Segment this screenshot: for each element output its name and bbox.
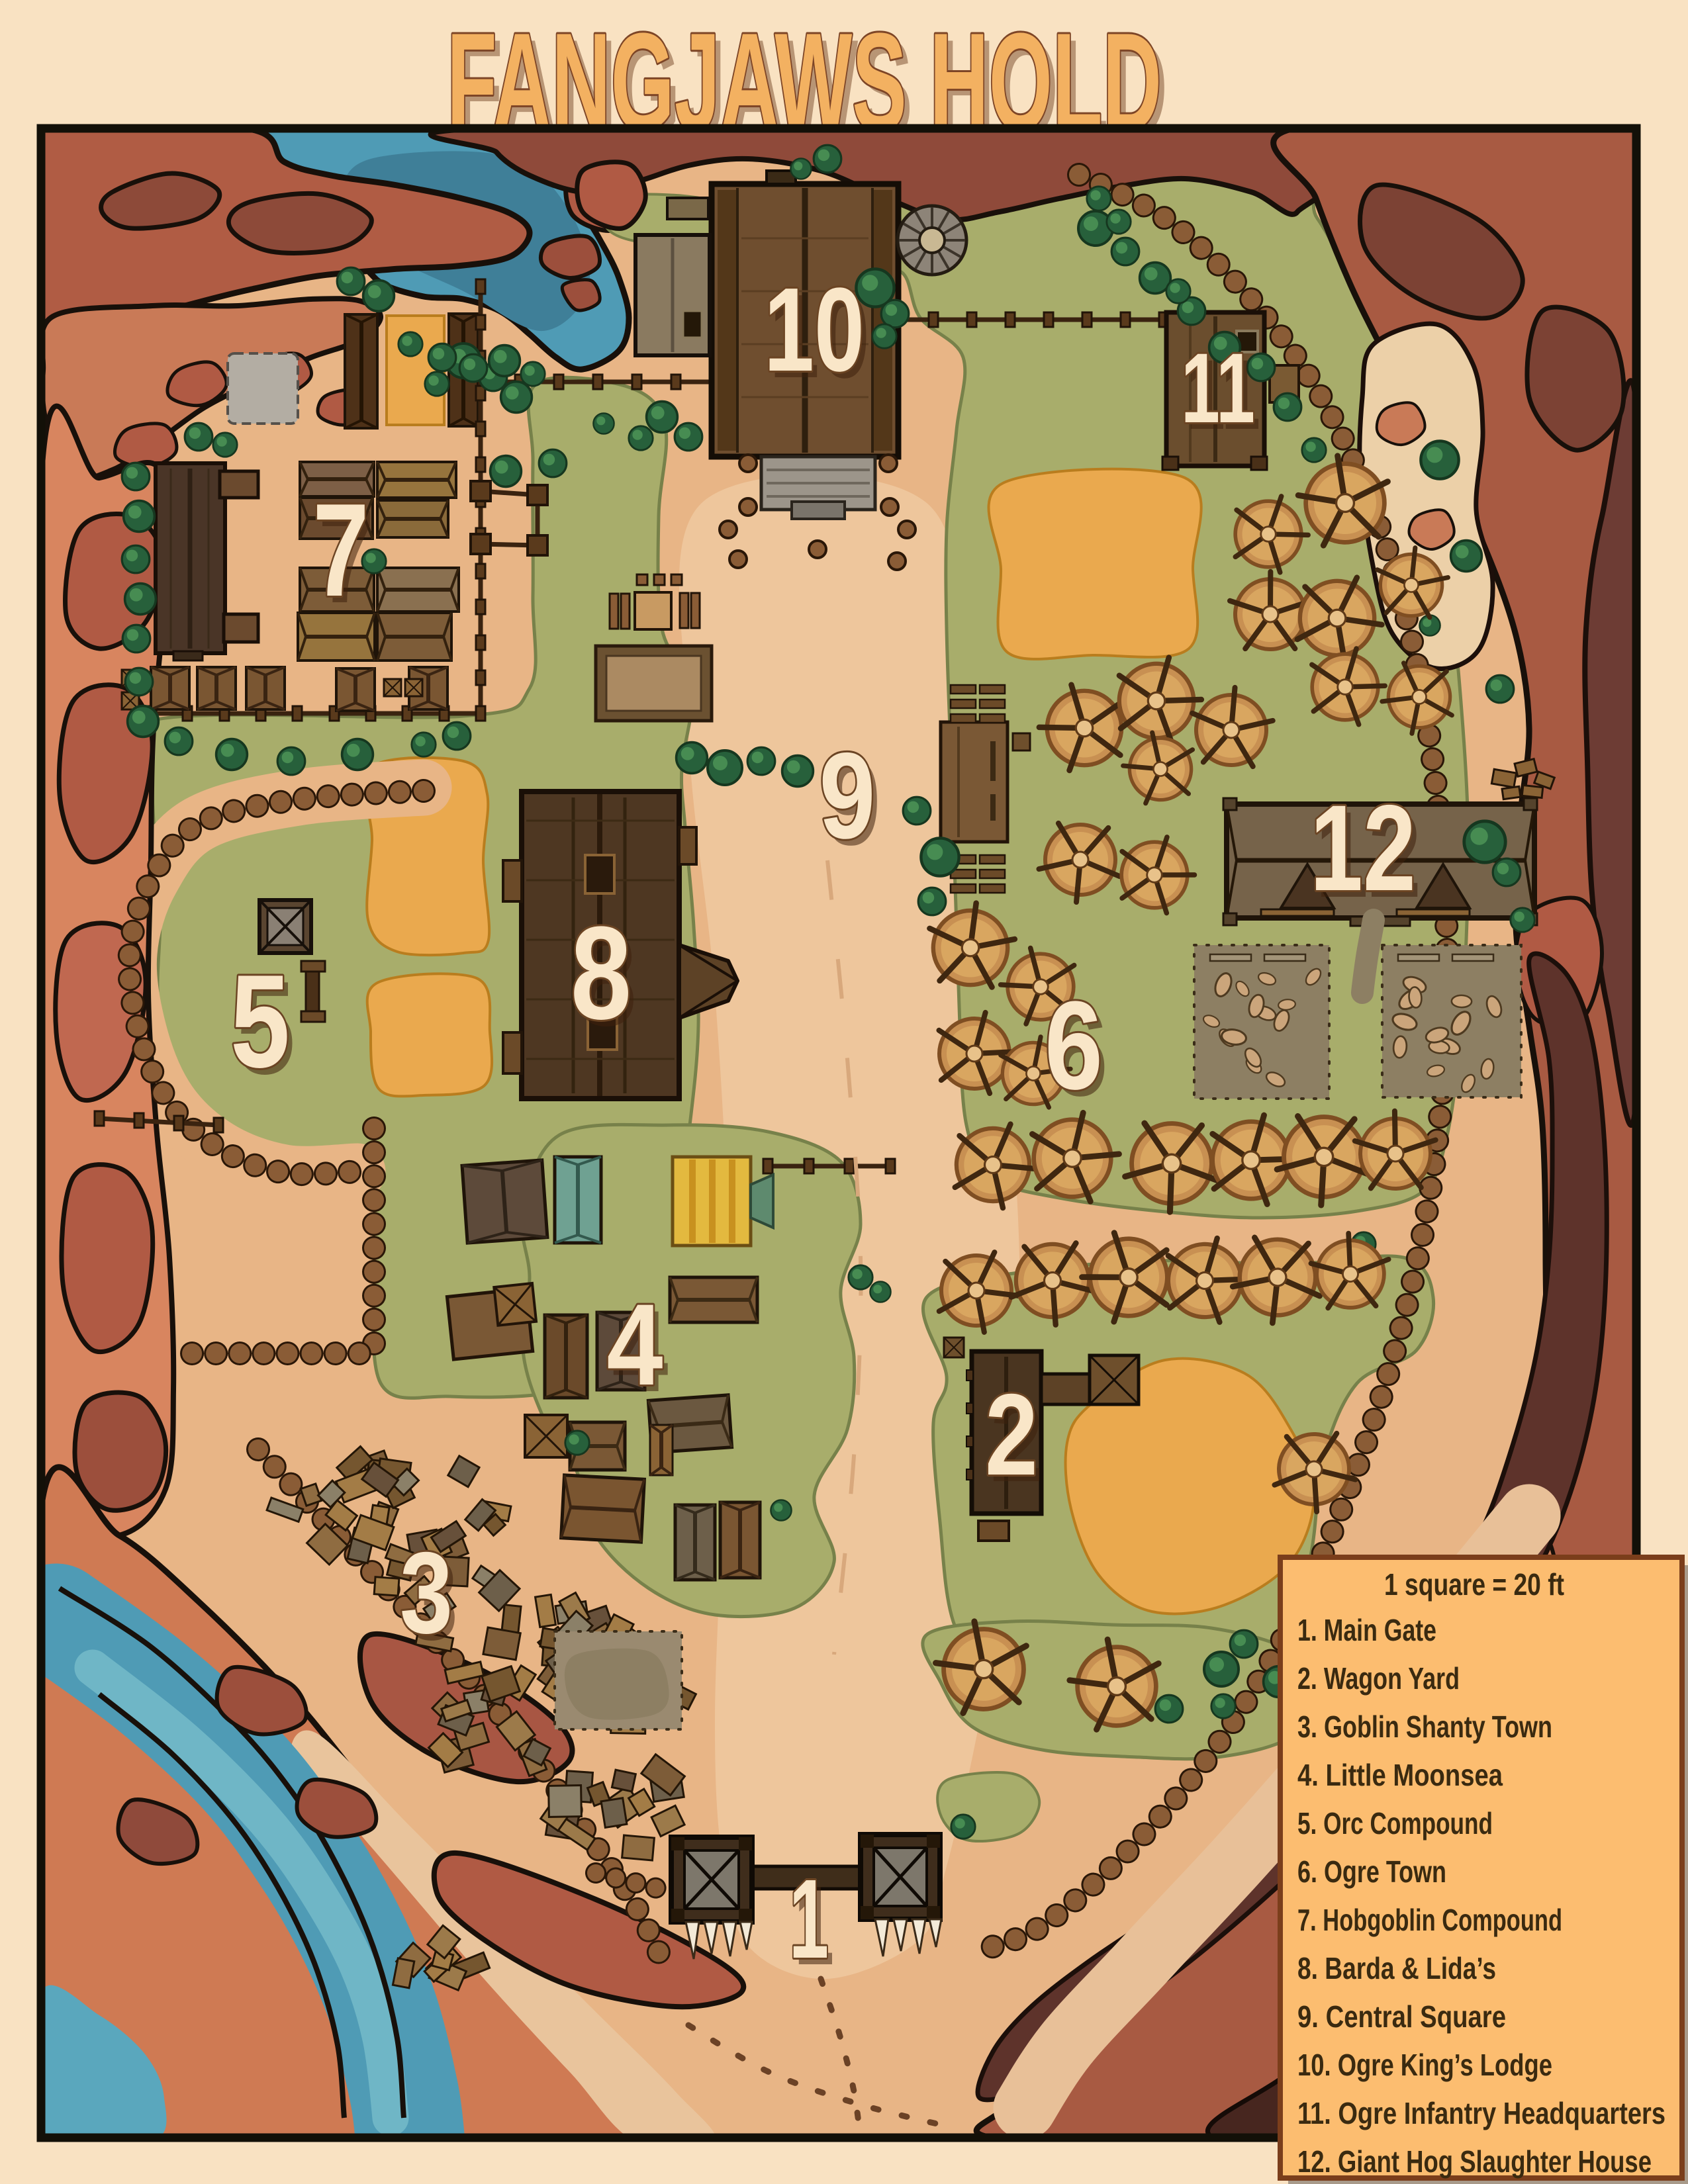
svg-text:3: 3 <box>400 1529 453 1658</box>
svg-text:1. Main Gate: 1. Main Gate <box>1297 1613 1436 1647</box>
svg-text:1 square = 20 ft: 1 square = 20 ft <box>1384 1567 1564 1602</box>
svg-text:12. Giant Hog Slaughter House: 12. Giant Hog Slaughter House <box>1297 2144 1652 2179</box>
svg-text:12: 12 <box>1310 780 1416 917</box>
svg-text:10: 10 <box>764 263 865 396</box>
svg-text:3. Goblin Shanty Town: 3. Goblin Shanty Town <box>1297 1709 1552 1744</box>
svg-text:1: 1 <box>789 1856 829 1982</box>
svg-text:11. Ogre Infantry Headquarters: 11. Ogre Infantry Headquarters <box>1297 2096 1665 2130</box>
svg-text:9: 9 <box>820 728 876 864</box>
svg-text:2. Wagon Yard: 2. Wagon Yard <box>1297 1661 1460 1696</box>
svg-text:10. Ogre King’s Lodge: 10. Ogre King’s Lodge <box>1297 2048 1552 2082</box>
svg-text:8: 8 <box>571 899 632 1047</box>
svg-text:9. Central Square: 9. Central Square <box>1297 1999 1506 2034</box>
svg-text:2: 2 <box>985 1371 1038 1500</box>
svg-text:6: 6 <box>1045 976 1103 1116</box>
svg-text:4. Little Moonsea: 4. Little Moonsea <box>1297 1758 1503 1792</box>
svg-text:5. Orc Compound: 5. Orc Compound <box>1297 1806 1493 1841</box>
svg-text:4: 4 <box>607 1281 663 1410</box>
svg-text:6. Ogre Town: 6. Ogre Town <box>1297 1854 1446 1889</box>
svg-text:7. Hobgoblin Compound: 7. Hobgoblin Compound <box>1297 1903 1562 1937</box>
svg-text:8. Barda & Lida’s: 8. Barda & Lida’s <box>1297 1951 1496 1985</box>
svg-text:11: 11 <box>1181 332 1255 443</box>
svg-text:7: 7 <box>313 477 369 624</box>
svg-text:5: 5 <box>230 948 290 1095</box>
